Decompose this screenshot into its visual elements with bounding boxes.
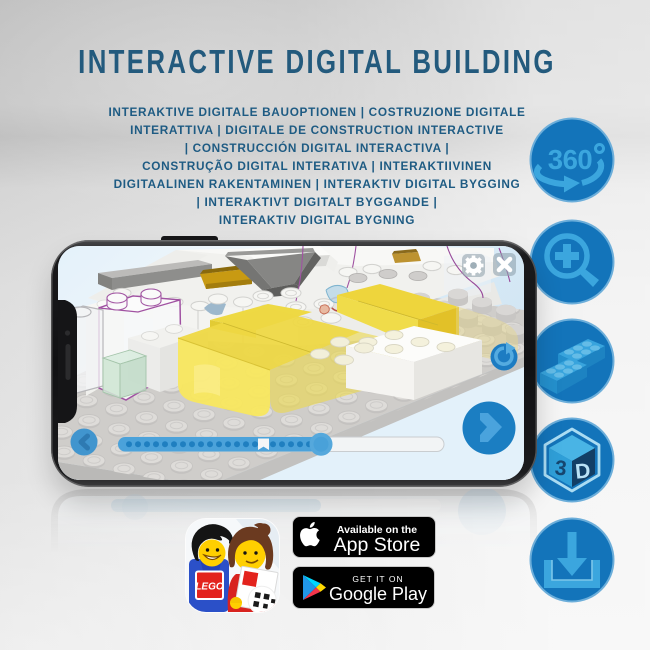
svg-text:D: D: [574, 459, 591, 483]
svg-text:App Store: App Store: [334, 534, 421, 556]
svg-text:360: 360: [548, 144, 593, 175]
svg-text:3: 3: [554, 456, 568, 480]
svg-text:LEGO: LEGO: [195, 582, 224, 593]
svg-text:Google Play: Google Play: [329, 584, 427, 604]
svg-text:GET IT ON: GET IT ON: [352, 574, 403, 584]
